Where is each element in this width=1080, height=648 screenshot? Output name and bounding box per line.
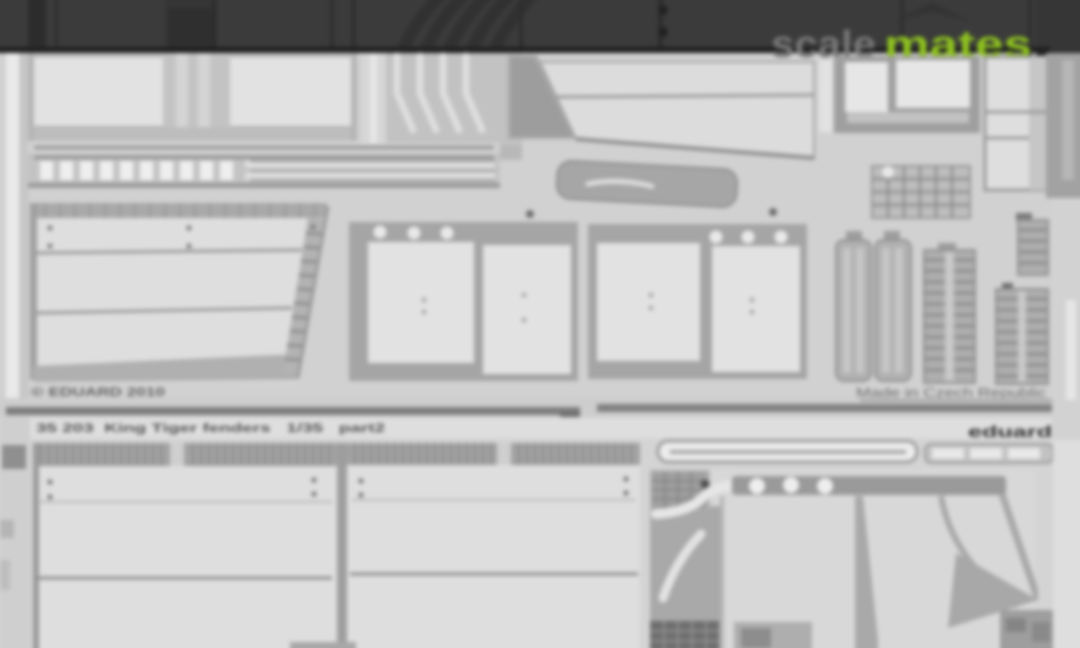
svg-text:Made in Czech Republic: Made in Czech Republic	[856, 385, 1047, 400]
svg-text:35 203 King Tiger fenders 1: 35 203 King Tiger fenders 1/35 part2	[36, 421, 386, 435]
svg-text:© EDUARD 2010: © EDUARD 2010	[31, 385, 165, 399]
svg-text:eduard: eduard	[968, 424, 1052, 441]
